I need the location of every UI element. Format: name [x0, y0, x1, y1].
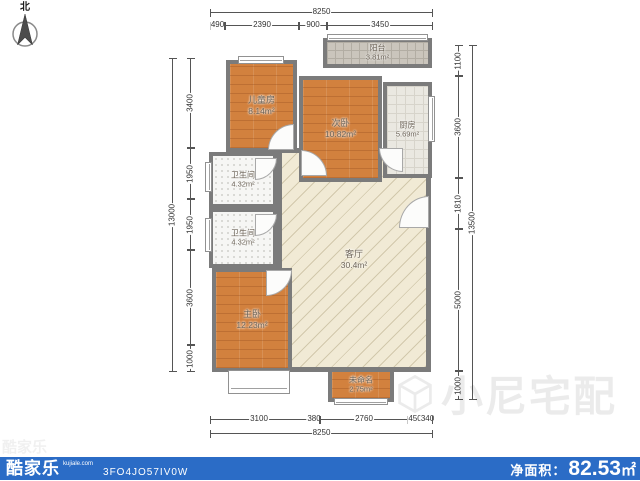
- dim-label: 1000: [455, 376, 464, 396]
- dim-label: 5000: [455, 290, 464, 310]
- dim-left-seg-2: 1950: [190, 199, 191, 250]
- kujiale-logo: 酷家乐: [6, 460, 60, 477]
- watermark-text: 小尼宅配: [441, 363, 617, 424]
- dim-bottom-seg-4: 340: [422, 419, 433, 420]
- dim-bottom-overall: 8250: [210, 433, 433, 434]
- window-kitchen-right: [428, 96, 435, 142]
- room-area: 4.32m²: [213, 238, 273, 246]
- dim-label: 900: [305, 21, 320, 30]
- footer-bar: 酷家乐 kujiale.com 3FO4JO57IV0W 净面积： 82.53 …: [0, 457, 640, 480]
- room-area: 3.81m²: [327, 53, 428, 61]
- room-name: 客厅: [282, 249, 426, 260]
- window-bath2-left: [205, 218, 212, 252]
- window-balcony-top: [327, 34, 428, 41]
- dim-top-overall: 8250: [210, 12, 433, 13]
- dim-label: 1810: [455, 194, 464, 214]
- room-name: 次卧: [303, 118, 378, 129]
- dim-left-overall: 13000: [172, 58, 173, 372]
- dim-label: 1100: [455, 51, 464, 70]
- kujiale-domain: kujiale.com: [63, 461, 93, 467]
- window-unnamed-bottom: [334, 398, 388, 405]
- window-bath1-left: [205, 162, 212, 192]
- bay-window-master-bottom: [228, 370, 290, 394]
- dim-label: 13000: [169, 203, 178, 227]
- dim-top-seg-0: 490: [210, 25, 225, 26]
- dim-right-seg-1: 3600: [458, 76, 459, 178]
- room-label-kitchen: 厨房 5.69m²: [387, 121, 428, 138]
- dim-right-overall: 13500: [472, 45, 473, 400]
- room-label-children: 儿童房 8.14m²: [230, 95, 293, 117]
- room-area: 5.69m²: [387, 130, 428, 138]
- net-area-label: 净面积：: [510, 460, 566, 479]
- dim-label: 8250: [312, 8, 332, 17]
- dim-left-seg-1: 1950: [190, 148, 191, 199]
- compass: 北: [8, 3, 42, 54]
- plan-code: 3FO4JO57IV0W: [103, 467, 188, 478]
- dim-bottom-seg-0: 3100: [210, 419, 308, 420]
- room-label-unnamed: 未命名 2.75m²: [332, 376, 390, 393]
- cube-watermark-icon: [393, 372, 437, 416]
- dim-left-seg-0: 3400: [190, 58, 191, 148]
- dim-label: 340: [420, 415, 435, 424]
- dim-label: 3100: [249, 415, 269, 424]
- net-area-unit: ㎡: [621, 459, 636, 480]
- dim-label: 490: [210, 21, 225, 30]
- dim-bottom-seg-2: 2760: [320, 419, 408, 420]
- room-label-secondary: 次卧 10.82m²: [303, 118, 378, 140]
- room-balcony: 阳台 3.81m²: [323, 38, 432, 68]
- dim-right-seg-4: 1000: [458, 371, 459, 400]
- window-children-top: [238, 56, 284, 64]
- dim-label: 2390: [252, 21, 272, 30]
- dim-label: 3450: [370, 21, 390, 30]
- dim-right-seg-0: 1100: [458, 45, 459, 76]
- dim-label: 3600: [455, 117, 464, 137]
- dim-label: 3400: [187, 93, 196, 113]
- dim-top-seg-3: 3450: [327, 25, 433, 26]
- dim-label: 8250: [312, 429, 332, 438]
- net-area-value: 82.53: [568, 457, 621, 481]
- dim-right-seg-2: 1810: [458, 178, 459, 229]
- dim-label: 2760: [354, 415, 374, 424]
- room-unnamed: 未命名 2.75m²: [328, 368, 394, 402]
- kujiale-watermark: 酷家乐: [2, 436, 47, 457]
- dim-bottom-seg-1: 380: [308, 419, 320, 420]
- room-area: 12.23m²: [216, 320, 288, 331]
- room-area: 10.82m²: [303, 129, 378, 140]
- net-area: 净面积： 82.53 ㎡: [510, 457, 636, 481]
- dim-top-seg-2: 900: [299, 25, 327, 26]
- dim-left-seg-3: 3600: [190, 250, 191, 345]
- dim-top-seg-1: 2390: [225, 25, 299, 26]
- room-label-master: 主卧 12.23m²: [216, 309, 288, 331]
- dim-right-seg-3: 5000: [458, 229, 459, 371]
- room-name: 主卧: [216, 309, 288, 320]
- room-name: 儿童房: [230, 95, 293, 106]
- room-label-living: 客厅 30.4m²: [282, 249, 426, 271]
- room-label-balcony: 阳台 3.81m²: [327, 44, 428, 61]
- room-area: 2.75m²: [332, 385, 390, 393]
- room-area: 30.4m²: [282, 260, 426, 271]
- dim-label: 3600: [187, 288, 196, 308]
- dim-label: 13500: [469, 210, 478, 234]
- dim-left-seg-4: 1000: [190, 345, 191, 372]
- compass-arrow-icon: [8, 13, 42, 49]
- dim-label: 1000: [187, 349, 196, 369]
- room-area: 8.14m²: [230, 106, 293, 117]
- room-area: 4.32m²: [213, 180, 273, 188]
- compass-north-label: 北: [8, 3, 42, 13]
- dim-label: 1950: [187, 164, 196, 184]
- dim-label: 1950: [187, 215, 196, 235]
